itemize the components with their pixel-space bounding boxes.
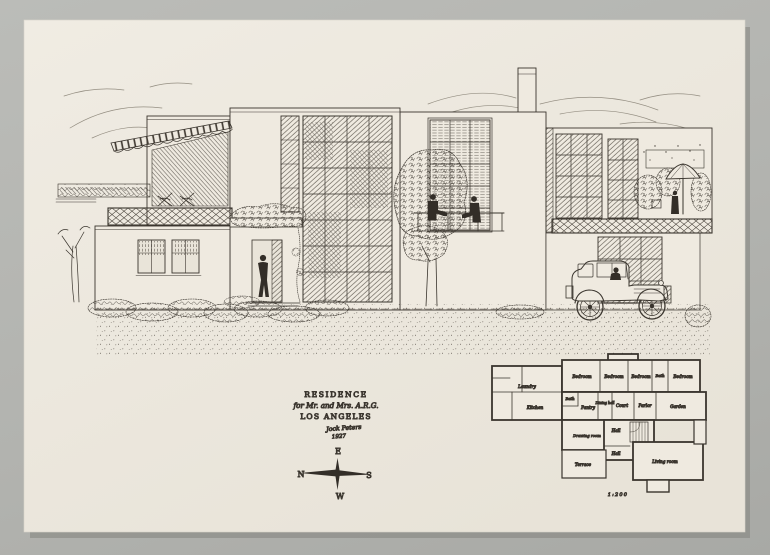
room-label: Pantry xyxy=(580,405,596,410)
plan-scale-label: 1:200 xyxy=(608,492,628,498)
room-label: Garden xyxy=(670,404,686,409)
drawing-year: 1927 xyxy=(332,433,347,440)
room-label: Bedroom xyxy=(571,374,591,379)
drawing-subtitle: for Mr. and Mrs. A.R.G. xyxy=(292,401,378,410)
lattice-parapet-right xyxy=(552,219,712,233)
right-wing-windows xyxy=(546,128,638,232)
car-headlamp xyxy=(659,281,664,286)
room-label: Bath xyxy=(654,373,665,378)
room-label: Parlor xyxy=(638,403,653,408)
room-label: Hall xyxy=(611,428,621,433)
door-leaf xyxy=(272,240,282,302)
architectural-drawing: RESIDENCE for Mr. and Mrs. A.R.G. LOS AN… xyxy=(0,0,770,555)
room-label: Laundry xyxy=(517,384,536,389)
compass-west-label: W xyxy=(336,492,345,501)
car-radiator xyxy=(664,286,671,303)
room-label: Bath xyxy=(564,396,575,401)
room-label: Living room xyxy=(651,459,678,464)
room-label: Bedroom xyxy=(603,374,623,379)
room-label: Bedroom xyxy=(630,374,650,379)
drawing-title: RESIDENCE xyxy=(304,390,368,399)
room-label: Court xyxy=(616,403,628,408)
drawing-city: LOS ANGELES xyxy=(300,412,372,421)
room-label: Bedroom xyxy=(672,374,692,379)
compass-south-label: S xyxy=(366,471,371,480)
compass-east-label: E xyxy=(335,447,341,456)
room-label: Kitchen xyxy=(526,405,544,410)
room-label: Drawing room xyxy=(572,433,601,438)
photograph-of-drawing: RESIDENCE for Mr. and Mrs. A.R.G. LOS AN… xyxy=(0,0,770,555)
chimney xyxy=(518,68,536,116)
room-label: Dining hall xyxy=(595,401,615,405)
room-label: Terrace xyxy=(575,462,592,467)
lattice-railing-left xyxy=(108,208,232,225)
compass-north-label: N xyxy=(298,470,305,479)
room-label: Hall xyxy=(611,451,621,456)
